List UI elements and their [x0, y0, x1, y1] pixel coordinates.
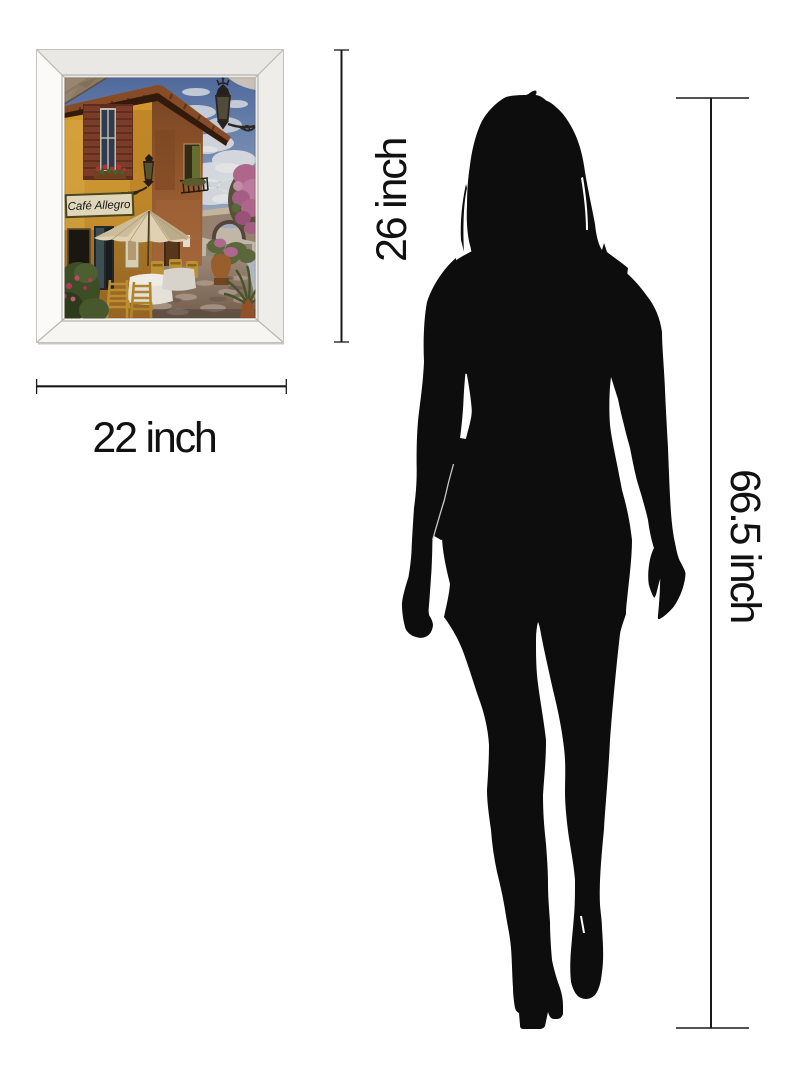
svg-text:22 inch: 22 inch: [92, 414, 216, 462]
svg-text:26 inch: 26 inch: [368, 138, 416, 262]
svg-text:66.5 inch: 66.5 inch: [721, 469, 769, 622]
